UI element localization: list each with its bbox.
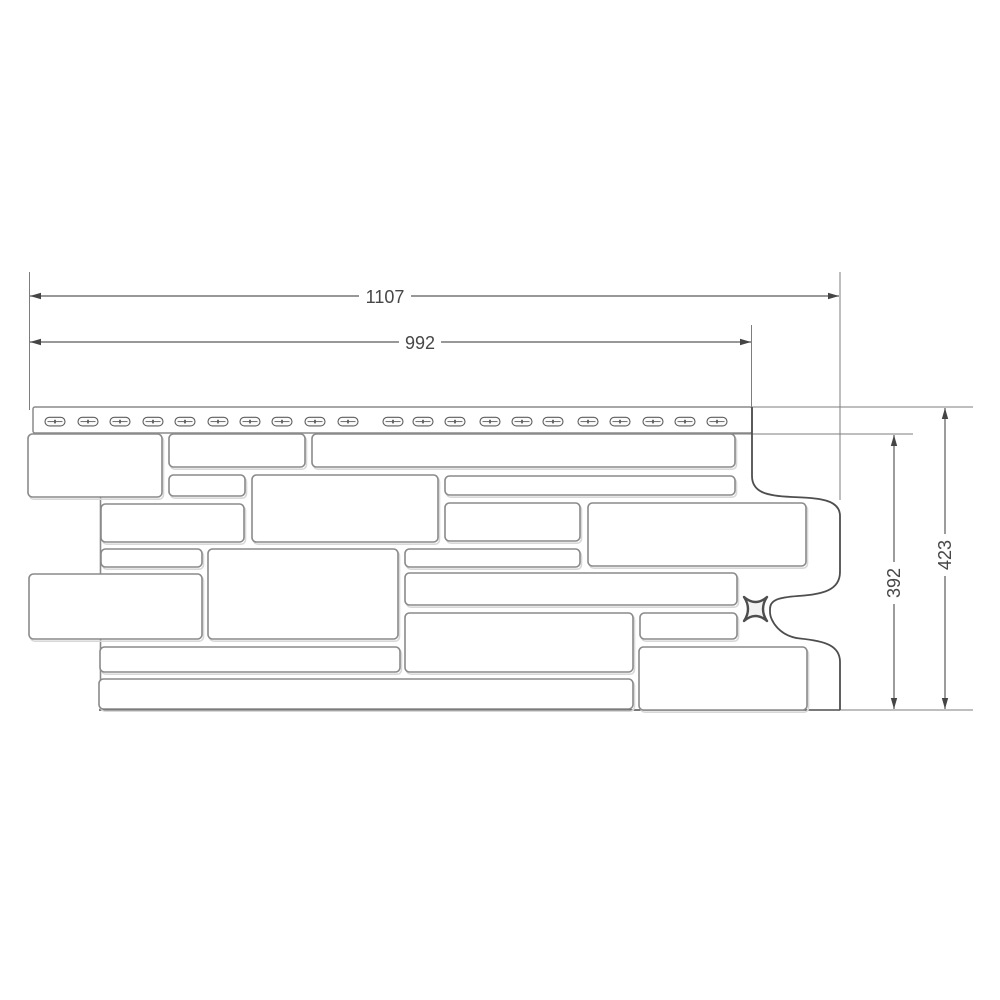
- nail-slot: [175, 417, 195, 426]
- stone-block: [99, 679, 635, 711]
- nail-slot-center-tick: [392, 420, 394, 424]
- nail-slot-center-tick: [217, 420, 219, 424]
- nail-slot: [578, 417, 598, 426]
- stone-outline: [169, 434, 305, 467]
- nail-slot-center-tick: [684, 420, 686, 424]
- nail-slot-center-tick: [652, 420, 654, 424]
- nail-slot: [383, 417, 403, 426]
- stone-block: [101, 504, 246, 544]
- nail-slot: [445, 417, 465, 426]
- nail-slot-center-tick: [619, 420, 621, 424]
- stone-block: [445, 476, 737, 497]
- stone-outline: [640, 613, 737, 639]
- nail-slot: [110, 417, 130, 426]
- stone-outline: [252, 475, 438, 542]
- stone-outline: [405, 573, 737, 605]
- nail-slot: [240, 417, 260, 426]
- stone-outline: [28, 434, 162, 497]
- nail-slot: [208, 417, 228, 426]
- stone-outline: [405, 549, 580, 567]
- nail-slot-center-tick: [347, 420, 349, 424]
- stone-block: [405, 549, 582, 569]
- nail-slot: [543, 417, 563, 426]
- stone-outline: [101, 549, 202, 567]
- nail-slot: [78, 417, 98, 426]
- stone-block: [405, 573, 739, 607]
- stone-block: [588, 503, 808, 568]
- dimension-label: 423: [935, 540, 955, 570]
- nail-slot: [675, 417, 695, 426]
- nail-slot: [512, 417, 532, 426]
- nail-slot: [338, 417, 358, 426]
- nail-slot-center-tick: [521, 420, 523, 424]
- dimension-label-group: 392: [884, 562, 904, 604]
- dimension-label: 392: [884, 568, 904, 598]
- drawing-stage: 1107992392423: [0, 0, 1000, 1000]
- nail-slot: [707, 417, 727, 426]
- nail-slot: [143, 417, 163, 426]
- nail-slot: [480, 417, 500, 426]
- nail-slot-center-tick: [54, 420, 56, 424]
- nail-slot: [643, 417, 663, 426]
- nail-slot: [413, 417, 433, 426]
- nail-slot: [610, 417, 630, 426]
- stone-outline: [445, 476, 735, 495]
- nail-slot-center-tick: [87, 420, 89, 424]
- stone-outline: [312, 434, 735, 467]
- nail-slot-center-tick: [119, 420, 121, 424]
- nail-slot-center-tick: [716, 420, 718, 424]
- dimension-label: 1107: [366, 287, 405, 307]
- stone-block: [252, 475, 440, 544]
- nail-slot-center-tick: [422, 420, 424, 424]
- stone-outline: [445, 503, 580, 541]
- nail-slot-center-tick: [314, 420, 316, 424]
- dimension-label: 992: [405, 333, 435, 353]
- nail-slot-center-tick: [454, 420, 456, 424]
- stone-outline: [405, 613, 633, 672]
- stone-outline: [101, 504, 244, 542]
- stone-block: [639, 647, 809, 712]
- stone-outline: [99, 679, 633, 709]
- stone-block: [100, 647, 402, 674]
- dimension-label-group: 423: [935, 534, 955, 576]
- stone-block: [169, 475, 247, 498]
- nail-slot: [272, 417, 292, 426]
- nail-slot-center-tick: [152, 420, 154, 424]
- nail-slot: [305, 417, 325, 426]
- stone-block: [101, 549, 204, 569]
- stone-block: [28, 434, 164, 499]
- nail-slot-center-tick: [281, 420, 283, 424]
- nail-slot-center-tick: [249, 420, 251, 424]
- nail-slot-center-tick: [587, 420, 589, 424]
- nail-slot: [45, 417, 65, 426]
- nail-slot-center-tick: [184, 420, 186, 424]
- nail-slot-center-tick: [552, 420, 554, 424]
- stone-block: [312, 434, 737, 469]
- stone-block: [405, 613, 635, 674]
- dimension-label-group: 1107: [359, 287, 411, 307]
- stone-outline: [169, 475, 245, 496]
- stone-outline: [100, 647, 400, 672]
- facade-panel-technical-drawing: 1107992392423: [0, 0, 1000, 1000]
- stone-outline: [639, 647, 807, 710]
- stone-block: [208, 549, 400, 641]
- stone-block: [169, 434, 307, 469]
- stone-block: [640, 613, 739, 641]
- dimension-label-group: 992: [399, 333, 441, 353]
- stone-block: [445, 503, 582, 543]
- stone-block: [29, 574, 204, 641]
- stone-outline: [29, 574, 202, 639]
- nail-slot-center-tick: [489, 420, 491, 424]
- nail-slots: [45, 417, 727, 426]
- stone-outline: [208, 549, 398, 639]
- stone-outline: [588, 503, 806, 566]
